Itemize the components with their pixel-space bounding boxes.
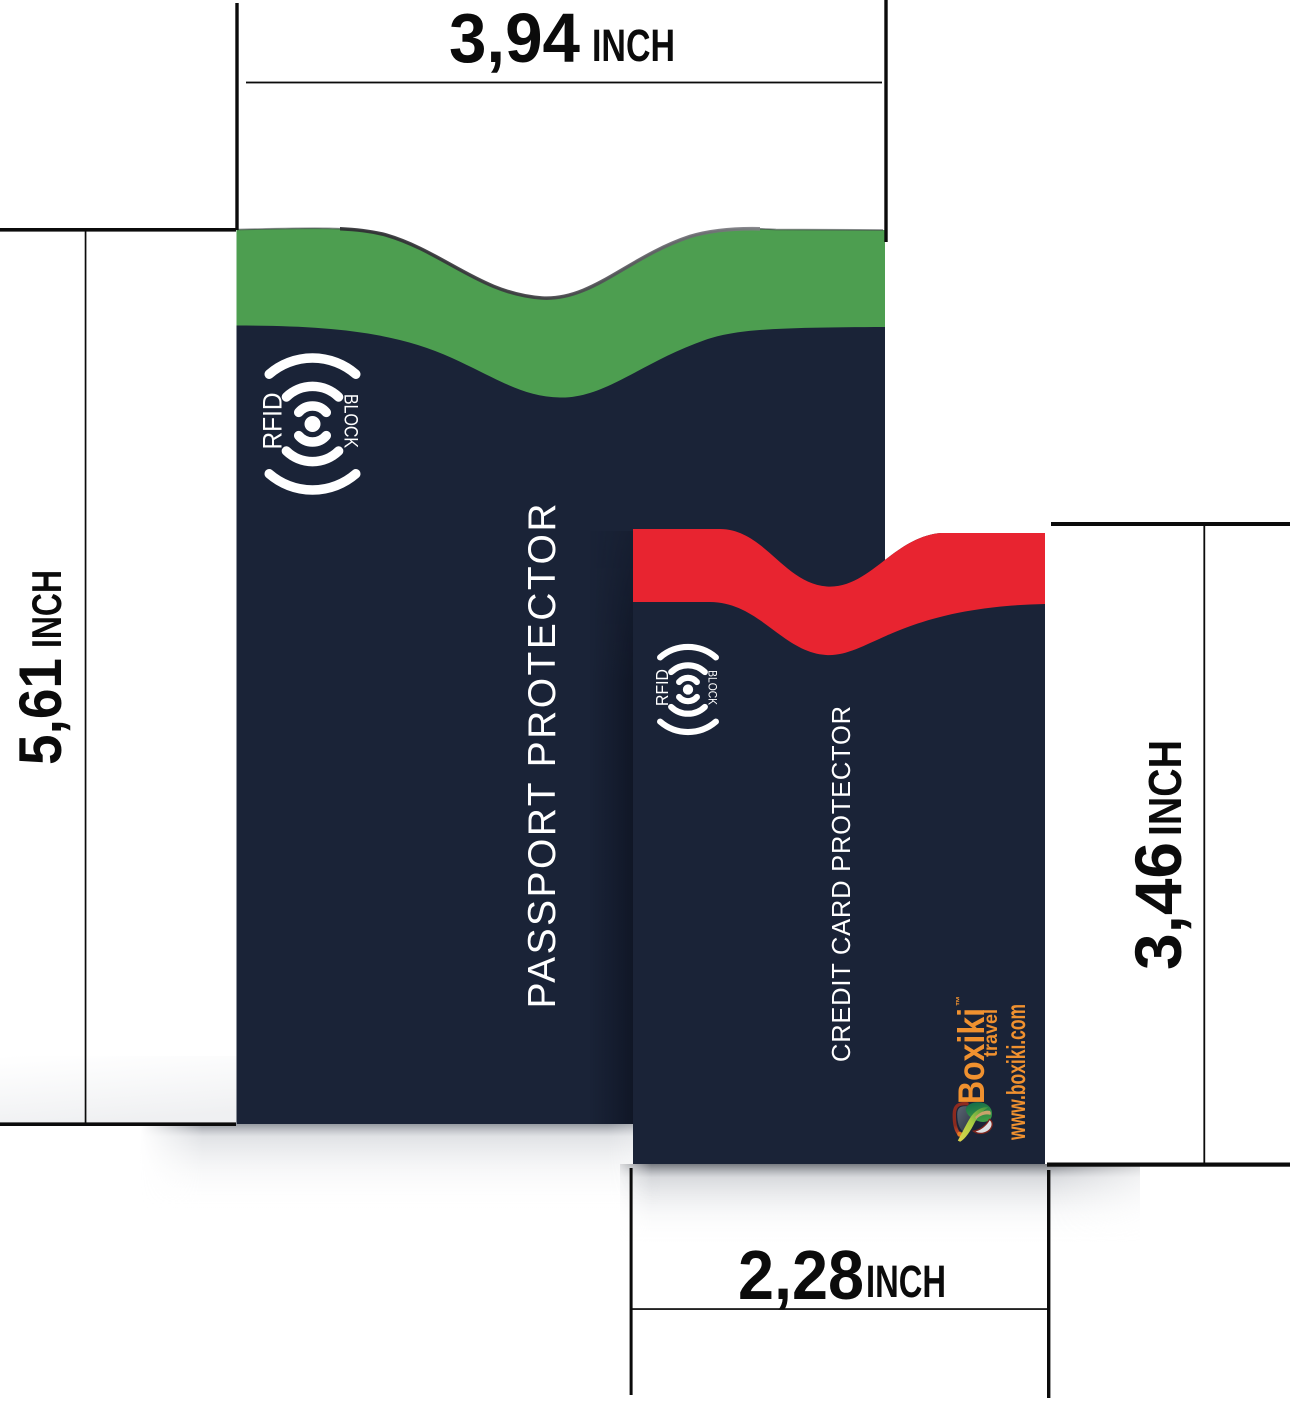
- svg-text:INCH: INCH: [592, 20, 675, 71]
- svg-text:INCH: INCH: [23, 570, 70, 648]
- svg-text:5,61: 5,61: [7, 658, 74, 765]
- svg-text:www.boxiki.com: www.boxiki.com: [1001, 1004, 1031, 1141]
- svg-text:3,94: 3,94: [449, 0, 580, 77]
- svg-text:travel: travel: [981, 1009, 1002, 1057]
- svg-text:INCH: INCH: [866, 1256, 946, 1307]
- svg-text:2,28: 2,28: [738, 1236, 864, 1314]
- svg-text:™: ™: [955, 996, 966, 1006]
- svg-text:PASSPORT PROTECTOR: PASSPORT PROTECTOR: [521, 504, 564, 1009]
- svg-text:INCH: INCH: [1139, 740, 1191, 836]
- svg-text:CREDIT CARD PROTECTOR: CREDIT CARD PROTECTOR: [828, 706, 856, 1062]
- svg-text:3,46: 3,46: [1121, 842, 1195, 970]
